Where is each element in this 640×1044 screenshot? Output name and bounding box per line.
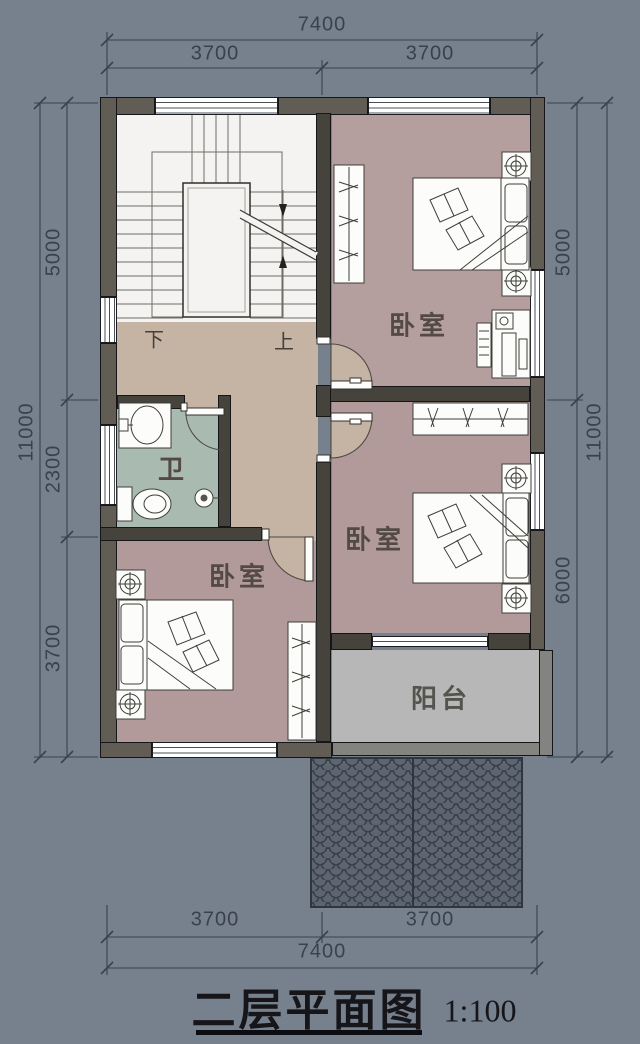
bathroom-label: 卫 — [158, 450, 184, 487]
bedroom3-furniture — [116, 570, 316, 740]
bedroom-mid-right-label: 卧室 — [345, 520, 405, 557]
bedroom-top-right-label: 卧室 — [389, 306, 449, 343]
staircase — [117, 115, 316, 318]
drawing-title: 二层平面图 — [192, 974, 427, 1038]
plan-detail-layer — [0, 0, 640, 1044]
balcony-label: 阳台 — [411, 679, 471, 716]
drawing-scale: 1:100 — [444, 993, 517, 1030]
stair-down-label: 下 — [144, 324, 164, 353]
bedroom-bottom-left-label: 卧室 — [209, 557, 269, 594]
title-underline — [196, 1030, 422, 1035]
bedroom2-furniture — [413, 403, 531, 613]
floor-plan-scene: 7400 3700 3700 11000 5000 2300 3700 1100… — [0, 0, 640, 1044]
bedroom1-furniture — [334, 152, 531, 378]
door-swings — [181, 337, 372, 581]
stair-up-label: 上 — [274, 326, 294, 355]
